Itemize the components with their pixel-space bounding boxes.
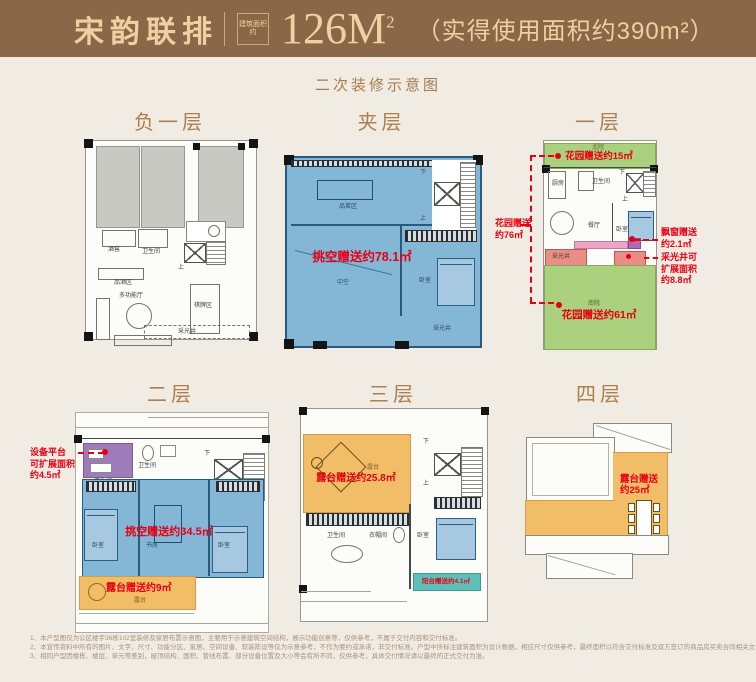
gift-label-void: 挑空赠送约78.1㎡: [287, 250, 437, 264]
gift-label-void: 挑空赠送约34.5㎡: [76, 526, 262, 539]
sink-icon: [160, 445, 176, 457]
window-band-icon: [405, 230, 477, 242]
room-label-light-well: 采光井: [178, 329, 196, 335]
room-label-bathroom: 卫生间: [592, 179, 610, 185]
bar-counter-icon: [98, 268, 144, 280]
chair-icon: [628, 514, 635, 523]
corner-mark: [313, 341, 327, 349]
wine-rack-icon: [102, 230, 136, 247]
plan-f2: 卫生间 卫生间 下 上 挑空赠送约34.5㎡ 卧室 书房 卧室 露台赠送约9㎡ …: [75, 412, 269, 633]
stairs-down-label: 下: [619, 170, 625, 176]
floor-title-mezzanine: 夹层: [285, 106, 478, 135]
red-dot: [629, 236, 635, 242]
plan-f4: 露台赠送 约25㎡: [518, 420, 682, 610]
room-label-bedroom: 卧室: [417, 533, 429, 539]
south-garden-area: [544, 265, 656, 350]
annotation-line: 可扩展面积: [30, 459, 75, 471]
usable-area-note: （实得使用面积约390m²）: [417, 11, 715, 46]
powder-room: [186, 221, 226, 242]
gift-label-south-garden: 花园赠送约61㎡: [544, 309, 654, 321]
gift-line: 约25㎡: [620, 486, 658, 497]
roof-line: [79, 613, 194, 614]
footnote-1: 1、本户型图仅为公区楼宇36栋102室装修及家居布置示意图，主要用于示意建筑空间…: [30, 634, 461, 643]
toilet-icon: [142, 445, 154, 461]
bathtub-icon: [331, 545, 363, 563]
stairs-down-label: 下: [204, 451, 210, 457]
wall-line: [400, 224, 402, 316]
annotation-line: 约8.8㎡: [661, 275, 697, 287]
storage-bay: [96, 146, 140, 228]
sink-icon: [208, 225, 220, 237]
table-icon: [636, 500, 652, 538]
seal-stamp: 建筑面积约: [237, 13, 269, 45]
toilet-icon: [393, 527, 405, 543]
stairs-icon: [206, 241, 226, 265]
room-label-bedroom: 卧室: [616, 227, 628, 233]
room-label-closet: 衣帽间: [369, 533, 387, 539]
floor-title-f2: 二层: [75, 378, 267, 407]
plant-icon: [311, 457, 323, 469]
annotation-light-well: 采光井可 扩展面积 约8.8㎡: [661, 252, 697, 287]
chair-icon: [653, 525, 660, 534]
bath-fixture-icon: [138, 229, 168, 248]
roof-line: [148, 417, 268, 418]
roof-inner-line: [532, 443, 609, 496]
stairs-icon: [643, 171, 656, 197]
stairs-up-label: 上: [622, 197, 628, 203]
corner-mark: [395, 341, 409, 349]
gift-label-balcony: 阳台赠送约4.1㎡: [413, 578, 479, 585]
corner-mark: [249, 332, 258, 341]
bed-icon: [436, 518, 476, 560]
annotation-bay-window: 飘窗赠送 约2.1㎡: [661, 227, 697, 250]
brand-title: 宋韵联排: [74, 7, 218, 51]
room-label-bedroom: 卧室: [419, 278, 431, 284]
gift-label-terrace: 露台赠送约9㎡: [106, 583, 172, 595]
red-dot: [555, 153, 561, 159]
storage-bay: [141, 146, 185, 228]
roof-line: [301, 601, 407, 602]
corner-mark: [249, 139, 258, 148]
chair-icon: [628, 525, 635, 534]
stairs-down-label: 下: [420, 170, 426, 176]
roof-line: [76, 427, 268, 428]
room-label-terrace: 露台: [367, 465, 379, 471]
chair-icon: [653, 514, 660, 523]
room-label-bath2: 卫生间: [138, 463, 156, 469]
room-label-study: 书房: [146, 543, 158, 549]
roof-line: [76, 623, 268, 624]
header: 宋韵联排 建筑面积约 126M2 （实得使用面积约390m²）: [0, 0, 756, 57]
elevator-icon: [214, 459, 243, 481]
gift-label-terrace: 露台赠送 约25㎡: [620, 475, 658, 497]
area-value: 126M2: [281, 7, 395, 51]
corner-mark: [84, 139, 93, 148]
corner-mark: [284, 339, 294, 349]
wall-line: [76, 438, 268, 439]
footnote-3: 3、相同户型因楼栋、楼层、单元等差别，屋顶结构、面积、管线布置、部分设备位置及大…: [30, 652, 489, 661]
plant-icon: [88, 583, 106, 601]
room-label-bathroom: 卫生间: [142, 249, 160, 255]
floor-title-b1: 负一层: [85, 106, 255, 135]
bay-window-strip: [574, 241, 628, 249]
corner-mark: [84, 332, 93, 341]
corner-mark: [299, 407, 307, 415]
wall-line: [544, 167, 656, 168]
floor-title-f1: 一层: [543, 106, 655, 135]
stairs-down-label: 下: [423, 439, 429, 445]
leader-line: [530, 302, 554, 304]
annotation-line: 约76㎡: [495, 230, 531, 242]
stairs-up-label: 上: [178, 265, 184, 271]
room-label-tea-area: 品茗区: [339, 204, 357, 210]
floorplan-poster: 宋韵联排 建筑面积约 126M2 （实得使用面积约390m²） 二次装修示意图 …: [0, 0, 756, 682]
plan-b1: 酒窖 卫生间 上 品酒区 多功能厅 棋牌区 采光井: [85, 140, 257, 340]
wardrobe-band-icon: [434, 497, 481, 509]
elevator-icon: [626, 173, 644, 193]
yard-label-south: 南院: [588, 301, 600, 307]
gift-label-terrace: 露台赠送约25.8㎡: [303, 473, 409, 485]
roof-line: [301, 591, 371, 592]
leader-line: [530, 155, 532, 303]
plan-f3: 露台 露台赠送约25.8㎡ 下 上 卫生间 衣帽间 卧室 阳台赠送约4.1㎡: [300, 408, 488, 622]
annotation-line: 约2.1㎡: [661, 239, 697, 251]
annotation-line: 飘窗赠送: [661, 227, 697, 239]
corner-mark: [193, 143, 200, 150]
wall-line: [409, 504, 411, 589]
plan-f1: 北院 花园赠送约15㎡ 厨房 卫生间 下 上 餐厅 卧室 采光井 南院 花园赠送…: [543, 140, 657, 350]
annotation-line: 约4.5㎡: [30, 470, 75, 482]
annotation-line: 扩展面积: [661, 264, 697, 276]
stairs-up-label: 上: [420, 216, 426, 222]
wardrobe-band-icon: [86, 481, 136, 492]
room-label-bed1: 卧室: [92, 543, 104, 549]
header-divider: [224, 12, 225, 46]
tea-table-icon: [317, 180, 373, 200]
room-label-void: 中空: [337, 280, 349, 286]
corner-mark: [74, 435, 82, 443]
room-label-wine-cellar: 酒窖: [108, 247, 120, 253]
stairs-icon: [460, 162, 476, 228]
footnote-2: 2、本宣传资料中所有的图片、文字、尺寸、功能分区、家居、空间设备、软装陈设等仅为…: [30, 643, 756, 652]
annotation-equipment: 设备平台 可扩展面积 约4.5㎡: [30, 447, 75, 482]
elevator-icon: [184, 243, 206, 263]
room-label-light-well: 采光井: [433, 326, 451, 332]
corner-mark: [238, 143, 245, 150]
room-label-bed2: 卧室: [218, 543, 230, 549]
bed-icon: [437, 258, 475, 306]
wardrobe-band-icon: [306, 513, 410, 526]
leader-line: [78, 452, 104, 454]
room-label-multi-hall: 多功能厅: [119, 293, 143, 299]
wall-line: [291, 224, 439, 226]
annotation-garden-left: 花园赠送 约76㎡: [495, 218, 531, 241]
room-label-bath: 卫生间: [327, 533, 345, 539]
floor-title-f3: 三层: [300, 378, 486, 407]
room-label-light-well: 采光井: [552, 254, 570, 260]
elevator-icon: [434, 182, 460, 206]
bath-fixture-icon: [90, 463, 112, 473]
red-dot: [102, 449, 108, 455]
wardrobe-band-icon: [216, 481, 260, 492]
corner-mark: [262, 435, 270, 443]
elevator-icon: [434, 453, 461, 476]
dining-table-icon: [550, 211, 574, 235]
area-superscript: 2: [386, 12, 395, 31]
room-label-chess: 棋牌区: [194, 303, 212, 309]
room-label-dining: 餐厅: [588, 223, 600, 229]
room-label-terrace: 露台: [134, 598, 146, 604]
chair-icon: [653, 503, 660, 512]
stairs-icon: [461, 447, 483, 497]
stairs-up-label: 上: [423, 481, 429, 487]
plan-mezzanine: 品茗区 下 上 卧室 中空 挑空赠送约78.1㎡ 采光井: [285, 156, 482, 348]
annotation-line: 采光井可: [661, 252, 697, 264]
red-dot: [626, 254, 631, 259]
room-label-kitchen: 厨房: [552, 181, 564, 187]
terrace-area: [525, 500, 615, 537]
corner-mark: [481, 407, 489, 415]
leader-line: [634, 239, 658, 241]
area-number: 126M: [281, 4, 386, 53]
storage-bay: [198, 146, 244, 228]
light-well-zone: [144, 325, 250, 339]
sofa-icon: [96, 298, 110, 340]
leader-line: [530, 155, 554, 157]
red-dot: [556, 302, 562, 308]
annotation-line: 设备平台: [30, 447, 75, 459]
subtitle: 二次装修示意图: [0, 74, 756, 95]
roof-plane: [525, 535, 669, 555]
chair-icon: [628, 503, 635, 512]
window-band-icon: [291, 160, 441, 167]
room-label-tasting: 品酒区: [114, 280, 132, 286]
floor-title-f4: 四层: [518, 378, 682, 407]
wall-line: [612, 203, 613, 243]
leader-line: [644, 257, 658, 259]
